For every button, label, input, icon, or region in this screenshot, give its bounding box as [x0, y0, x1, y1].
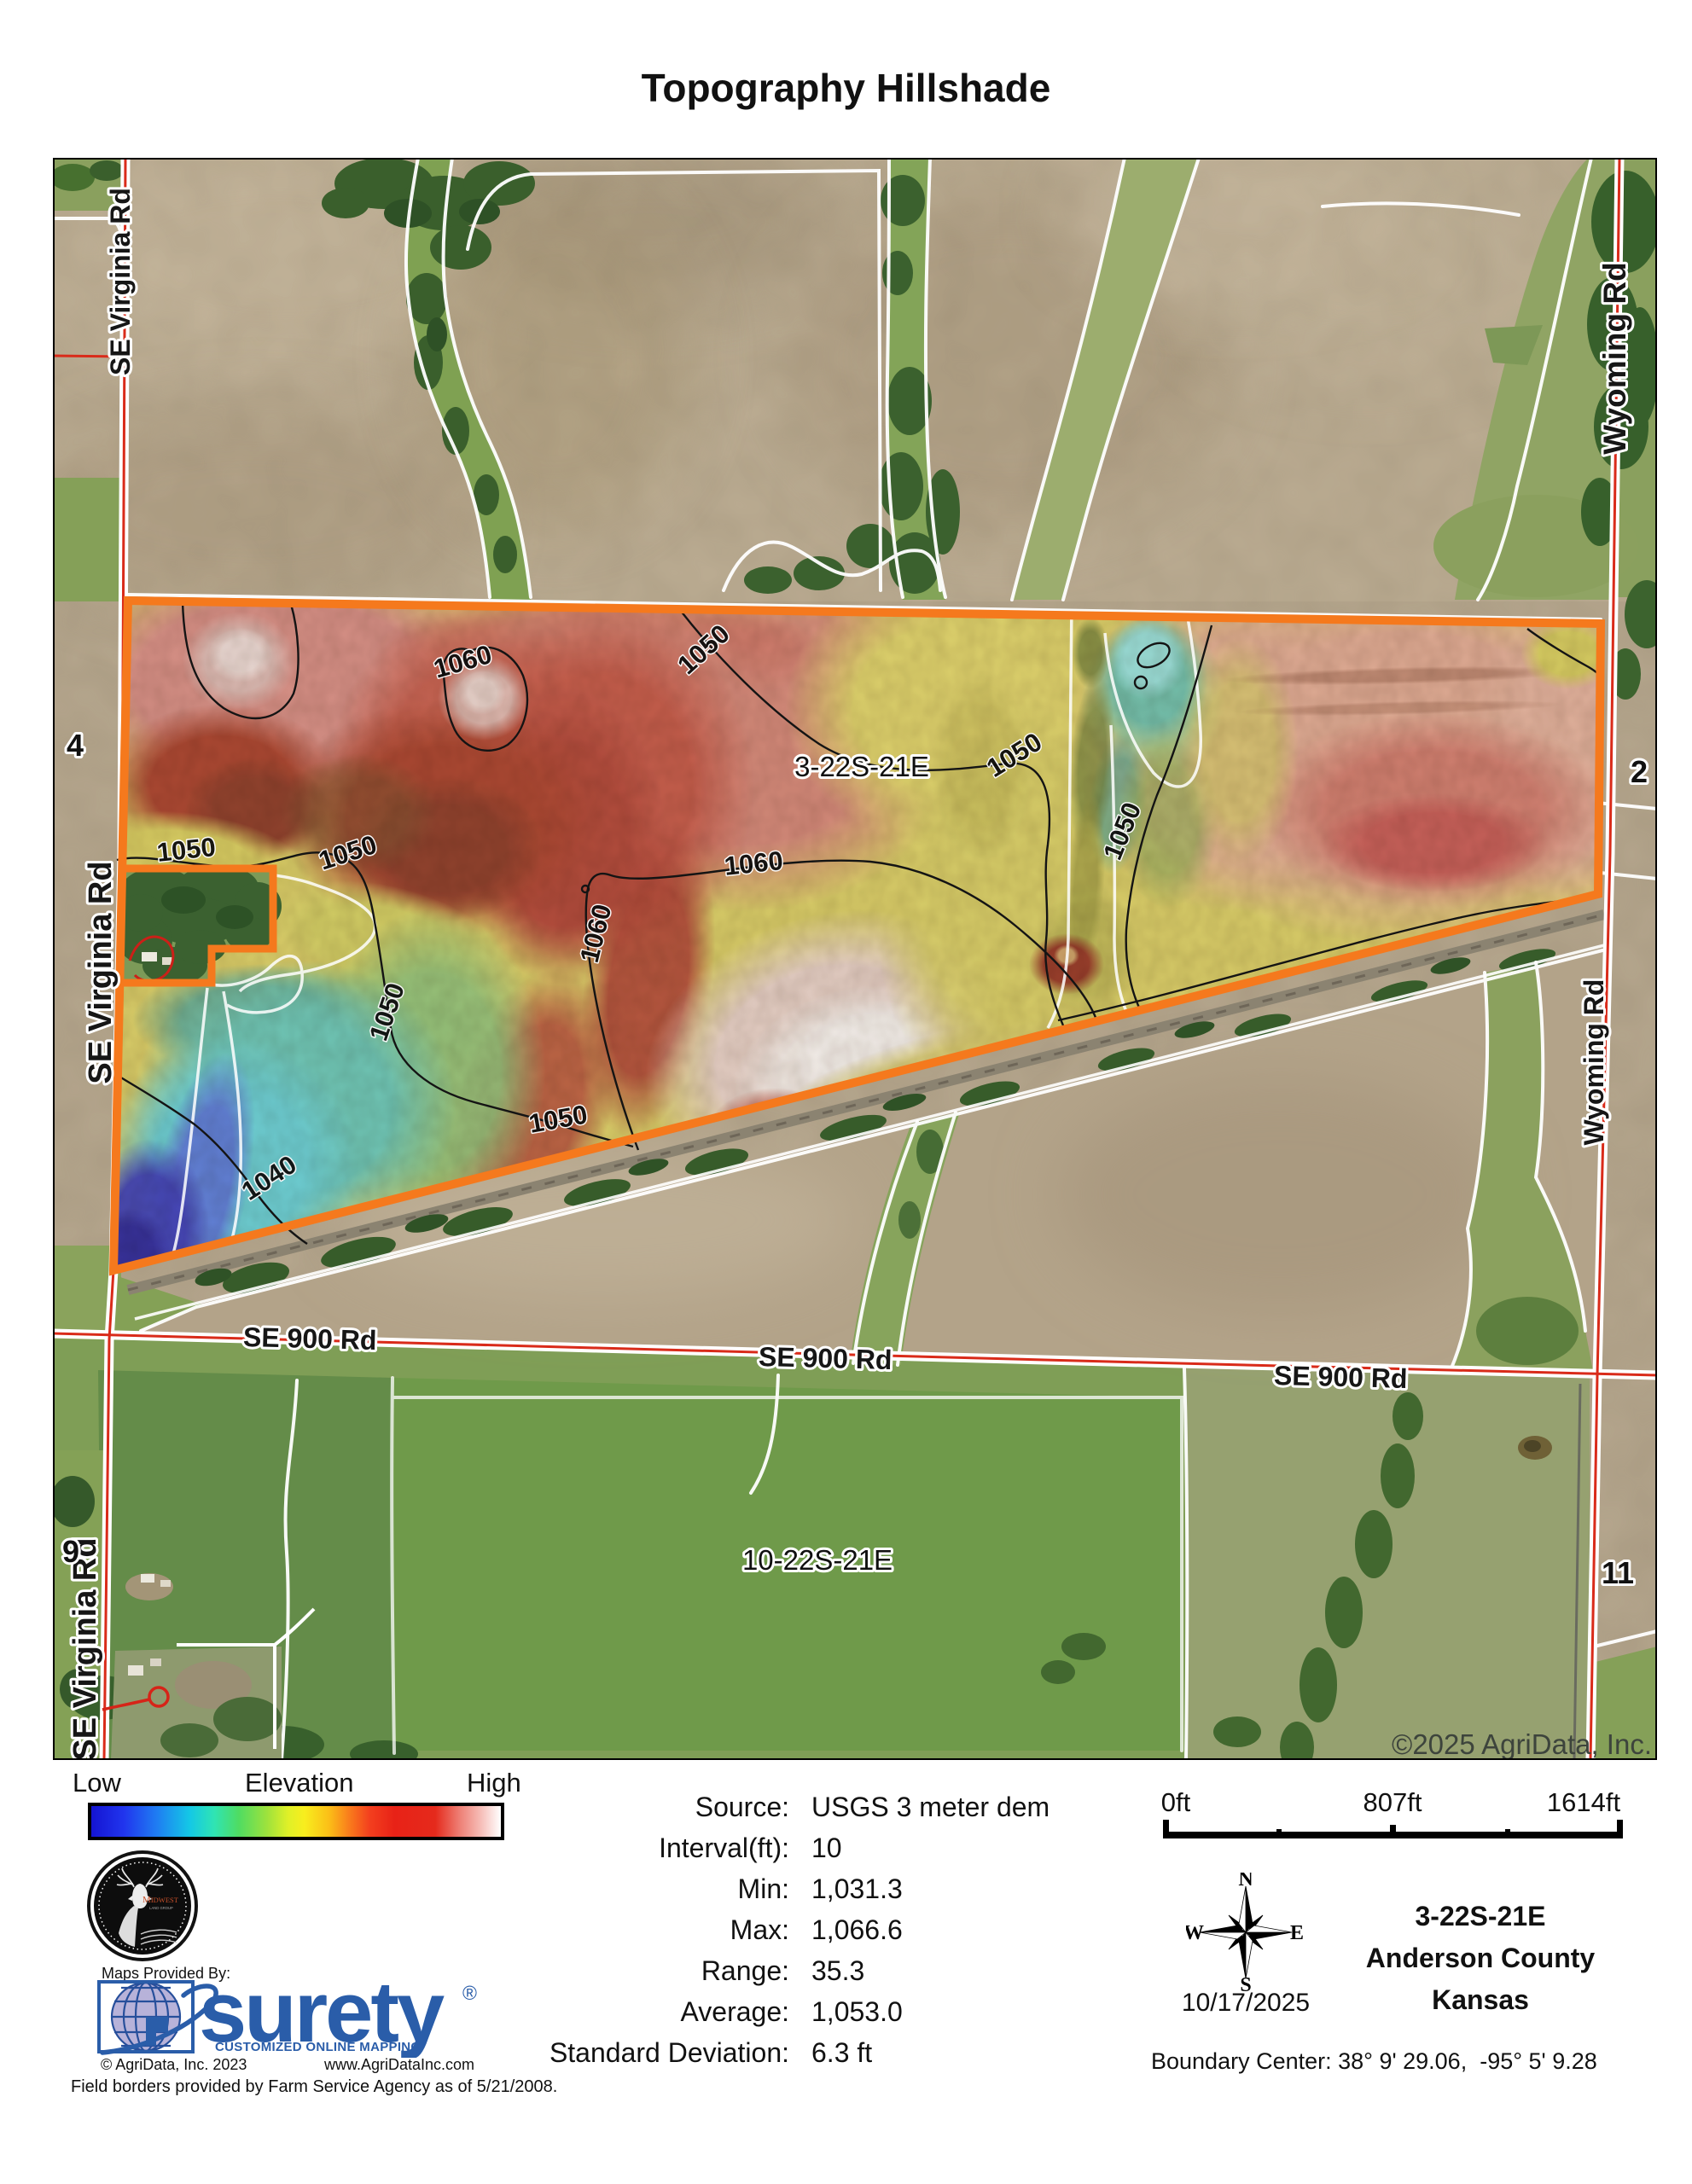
svg-text:SE Virginia Rd: SE Virginia Rd [83, 861, 119, 1083]
svg-text:MIDWEST: MIDWEST [142, 1895, 179, 1905]
svg-text:SE Virginia Rd: SE Virginia Rd [67, 1537, 103, 1760]
svg-text:Wyoming Rd: Wyoming Rd [1597, 262, 1632, 454]
svg-text:10-22S-21E: 10-22S-21E [742, 1544, 893, 1576]
svg-text:®: ® [462, 1982, 477, 2004]
svg-text:SE Virginia Rd: SE Virginia Rd [105, 188, 136, 375]
svg-text:N: N [1238, 1873, 1253, 1891]
svg-text:Wyoming Rd: Wyoming Rd [1579, 979, 1609, 1146]
svg-text:LAND GROUP: LAND GROUP [149, 1906, 173, 1910]
svg-text:11: 11 [1602, 1555, 1634, 1590]
svg-text:1614ft: 1614ft [1547, 1787, 1621, 1817]
svg-text:E: E [1290, 1922, 1304, 1944]
svg-text:0ft: 0ft [1161, 1787, 1191, 1817]
svg-text:3-22S-21E: 3-22S-21E [794, 751, 929, 782]
svg-text:1050: 1050 [155, 832, 217, 868]
svg-text:SE 900 Rd: SE 900 Rd [1274, 1360, 1408, 1394]
svg-text:2: 2 [1631, 754, 1648, 789]
svg-text:SE 900 Rd: SE 900 Rd [243, 1321, 377, 1356]
svg-text:SE 900 Rd: SE 900 Rd [759, 1341, 893, 1375]
svg-text:W: W [1186, 1922, 1204, 1944]
svg-text:9: 9 [62, 1534, 79, 1569]
svg-text:CUSTOMIZED ONLINE MAPPING: CUSTOMIZED ONLINE MAPPING [215, 2040, 421, 2054]
svg-text:807ft: 807ft [1363, 1787, 1422, 1817]
svg-text:1060: 1060 [723, 845, 784, 881]
svg-text:4: 4 [67, 728, 84, 763]
svg-text:©2025 AgriData, Inc.: ©2025 AgriData, Inc. [1392, 1728, 1652, 1760]
